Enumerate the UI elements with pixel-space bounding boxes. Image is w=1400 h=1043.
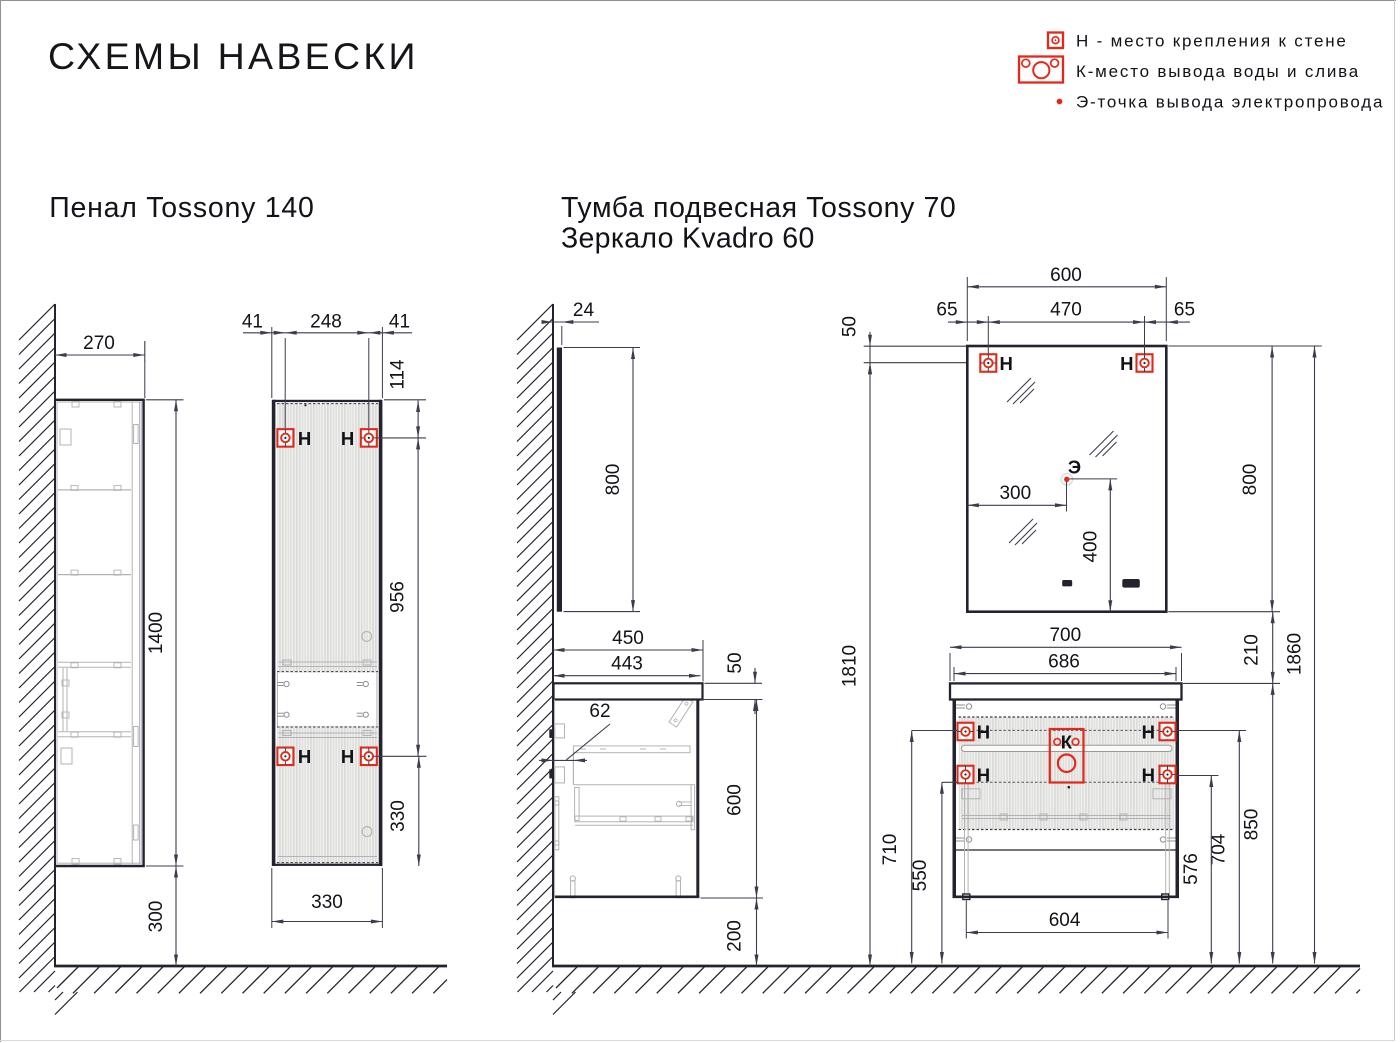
svg-text:210: 210 xyxy=(1241,634,1262,666)
svg-text:330: 330 xyxy=(388,800,409,832)
svg-text:Э-точка вывода электропровода: Э-точка вывода электропровода xyxy=(1076,93,1384,112)
svg-text:Н: Н xyxy=(1120,353,1133,374)
svg-text:114: 114 xyxy=(388,359,409,390)
svg-text:248: 248 xyxy=(310,312,342,333)
svg-text:710: 710 xyxy=(880,834,901,866)
svg-text:Н: Н xyxy=(341,428,354,449)
svg-text:850: 850 xyxy=(1241,809,1262,841)
svg-text:Н: Н xyxy=(298,428,311,449)
svg-text:600: 600 xyxy=(725,784,746,816)
svg-text:62: 62 xyxy=(589,701,610,722)
svg-text:К: К xyxy=(1061,732,1073,753)
svg-text:Н: Н xyxy=(298,746,311,767)
svg-text:СХЕМЫ НАВЕСКИ: СХЕМЫ НАВЕСКИ xyxy=(48,35,419,77)
svg-text:330: 330 xyxy=(311,892,343,913)
svg-text:800: 800 xyxy=(603,464,624,496)
svg-text:Э: Э xyxy=(1068,456,1081,477)
svg-text:Н: Н xyxy=(1142,721,1155,742)
svg-text:1860: 1860 xyxy=(1285,633,1306,675)
svg-text:400: 400 xyxy=(1081,531,1102,563)
svg-text:50: 50 xyxy=(839,316,860,337)
svg-text:686: 686 xyxy=(1048,652,1080,673)
svg-text:Пенал Tossony 140: Пенал Tossony 140 xyxy=(49,192,314,224)
svg-text:600: 600 xyxy=(1050,265,1082,286)
svg-text:Н: Н xyxy=(977,721,990,742)
svg-text:41: 41 xyxy=(242,312,263,333)
svg-text:270: 270 xyxy=(83,333,115,354)
svg-text:1400: 1400 xyxy=(146,612,167,654)
svg-text:Н: Н xyxy=(1142,764,1155,785)
svg-text:41: 41 xyxy=(389,312,410,333)
svg-text:443: 443 xyxy=(611,654,643,675)
svg-text:24: 24 xyxy=(573,300,595,321)
svg-text:Н: Н xyxy=(1000,353,1013,374)
svg-text:550: 550 xyxy=(910,860,931,892)
svg-text:Н: Н xyxy=(977,764,990,785)
svg-text:65: 65 xyxy=(1174,300,1195,321)
svg-text:604: 604 xyxy=(1049,910,1081,931)
svg-text:470: 470 xyxy=(1050,300,1082,321)
svg-text:65: 65 xyxy=(936,300,957,321)
svg-text:Н: Н xyxy=(341,746,354,767)
svg-text:576: 576 xyxy=(1181,853,1202,885)
svg-text:300: 300 xyxy=(146,901,167,933)
svg-text:450: 450 xyxy=(612,628,644,649)
svg-text:Н - место крепления к стене: Н - место крепления к стене xyxy=(1076,32,1348,51)
svg-text:Зеркало Kvadro 60: Зеркало Kvadro 60 xyxy=(561,223,815,255)
svg-text:300: 300 xyxy=(999,483,1031,504)
svg-text:50: 50 xyxy=(725,652,746,673)
svg-text:1810: 1810 xyxy=(840,645,861,687)
svg-text:700: 700 xyxy=(1049,625,1081,646)
svg-text:956: 956 xyxy=(388,581,409,613)
svg-text:Тумба подвесная Tossony 70: Тумба подвесная Tossony 70 xyxy=(561,192,956,224)
svg-text:200: 200 xyxy=(725,920,746,952)
svg-text:800: 800 xyxy=(1240,464,1261,496)
svg-text:К-место вывода воды и слива: К-место вывода воды и слива xyxy=(1076,62,1360,81)
